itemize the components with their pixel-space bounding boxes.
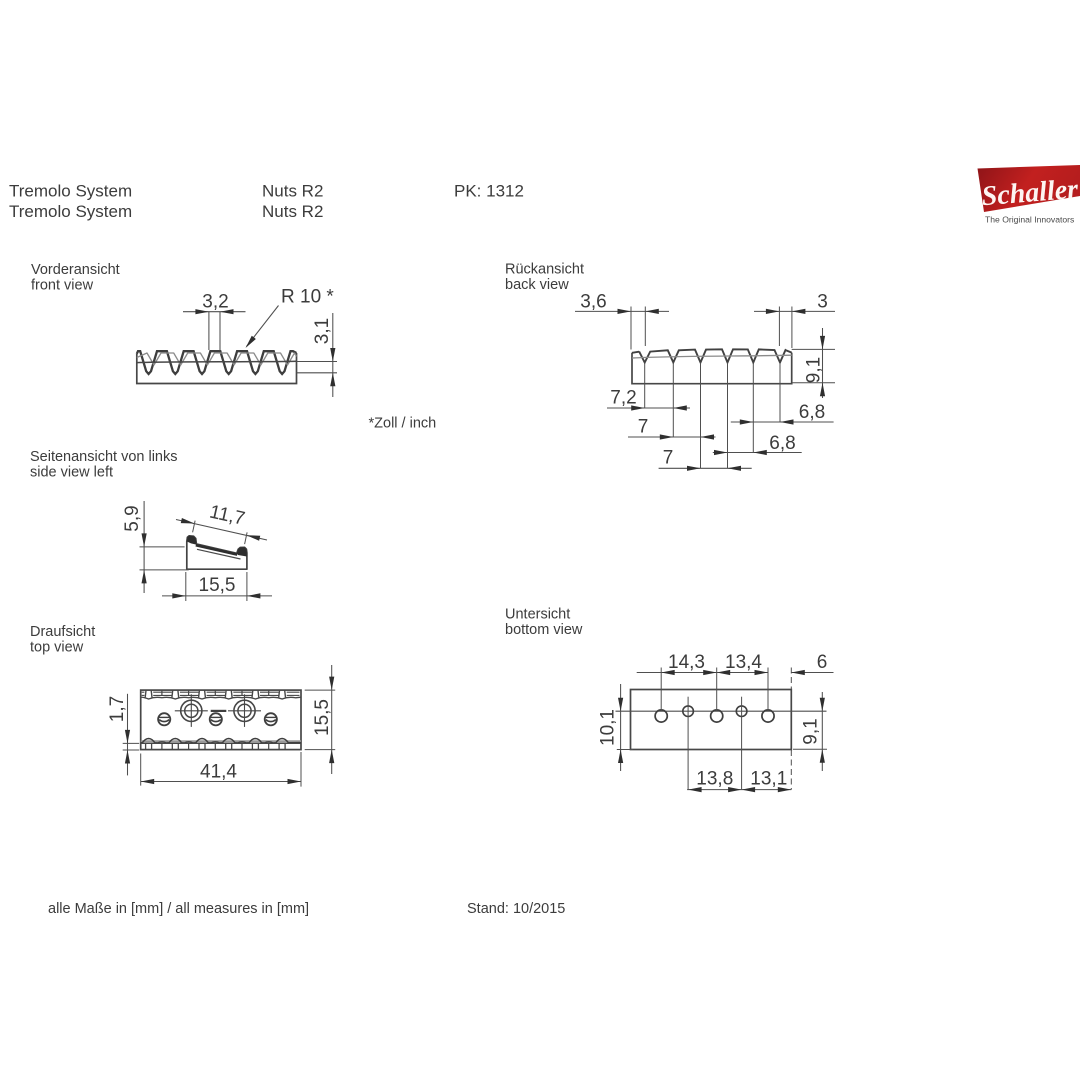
svg-text:3: 3: [817, 292, 828, 313]
svg-text:Nuts R2: Nuts R2: [262, 202, 323, 221]
svg-text:1,7: 1,7: [107, 696, 128, 722]
svg-text:15,5: 15,5: [199, 575, 236, 596]
svg-text:top view: top view: [30, 640, 84, 656]
svg-text:Untersicht: Untersicht: [505, 607, 570, 623]
svg-text:5,9: 5,9: [122, 505, 143, 531]
svg-text:7: 7: [638, 417, 649, 438]
svg-text:Stand: 10/2015: Stand: 10/2015: [467, 901, 565, 917]
svg-text:13,8: 13,8: [696, 769, 733, 790]
svg-text:The Original Innovators: The Original Innovators: [985, 215, 1074, 225]
svg-text:Nuts R2: Nuts R2: [262, 182, 323, 201]
svg-text:7: 7: [663, 448, 674, 469]
svg-text:6: 6: [817, 652, 828, 673]
svg-text:Rückansicht: Rückansicht: [505, 262, 584, 278]
svg-text:3,2: 3,2: [202, 292, 228, 313]
svg-text:PK: 1312: PK: 1312: [454, 182, 524, 201]
svg-text:Draufsicht: Draufsicht: [30, 624, 95, 640]
svg-text:front view: front view: [31, 278, 94, 294]
svg-text:10,1: 10,1: [598, 709, 619, 746]
svg-text:Vorderansicht: Vorderansicht: [31, 262, 120, 278]
svg-text:7,2: 7,2: [610, 388, 636, 409]
svg-text:bottom view: bottom view: [505, 622, 583, 638]
svg-text:Tremolo System: Tremolo System: [9, 202, 132, 221]
svg-text:back view: back view: [505, 277, 569, 293]
svg-text:*Zoll / inch: *Zoll / inch: [369, 416, 437, 432]
svg-text:9,1: 9,1: [801, 718, 822, 744]
svg-text:13,1: 13,1: [750, 769, 787, 790]
svg-text:3,1: 3,1: [312, 318, 333, 344]
svg-text:Tremolo System: Tremolo System: [9, 182, 132, 201]
svg-text:14,3: 14,3: [668, 652, 705, 673]
svg-text:41,4: 41,4: [200, 762, 237, 783]
svg-text:6,8: 6,8: [769, 433, 795, 454]
svg-text:alle Maße in [mm] / all measur: alle Maße in [mm] / all measures in [mm]: [48, 901, 309, 917]
svg-text:Seitenansicht von links: Seitenansicht von links: [30, 449, 178, 465]
svg-text:9,1: 9,1: [804, 357, 825, 383]
svg-text:R 10 *: R 10 *: [281, 287, 334, 308]
svg-text:6,8: 6,8: [799, 402, 825, 423]
svg-text:15,5: 15,5: [312, 699, 333, 736]
svg-text:13,4: 13,4: [725, 652, 762, 673]
svg-text:3,6: 3,6: [580, 292, 606, 313]
svg-text:side view left: side view left: [30, 465, 113, 481]
